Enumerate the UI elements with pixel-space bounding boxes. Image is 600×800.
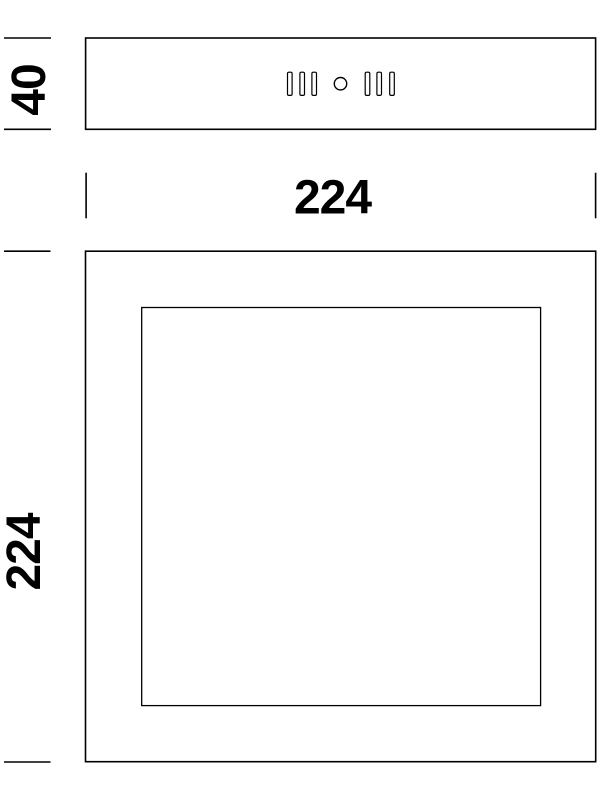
svg-text:224: 224 (0, 512, 51, 590)
svg-text:224: 224 (294, 172, 372, 225)
svg-text:40: 40 (3, 64, 56, 115)
